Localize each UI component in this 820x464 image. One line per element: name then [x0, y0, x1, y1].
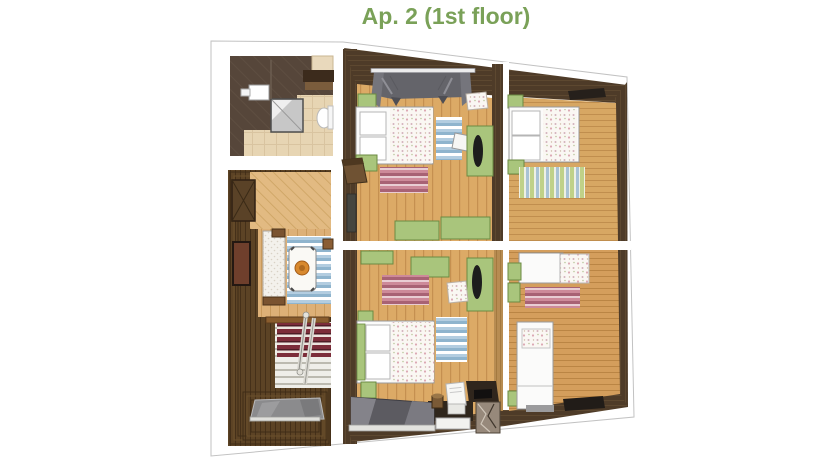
- svg-text:Ap. 2 (1st floor): Ap. 2 (1st floor): [362, 3, 531, 29]
